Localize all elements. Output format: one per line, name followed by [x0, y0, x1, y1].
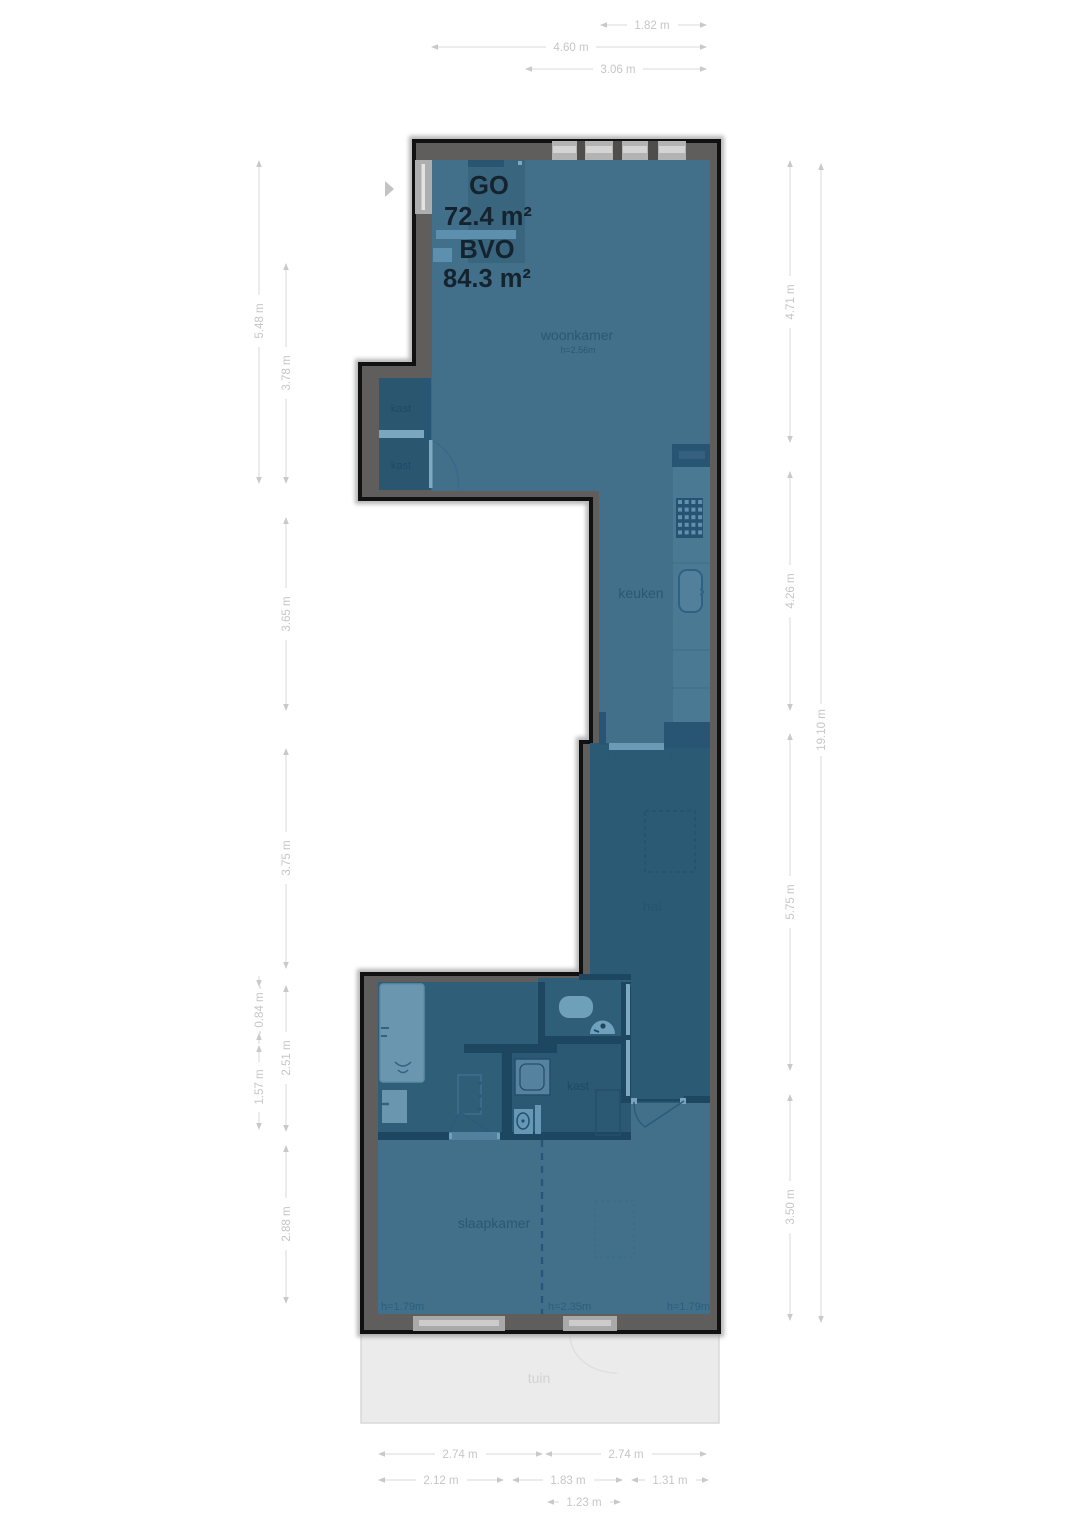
svg-text:1.83 m: 1.83 m	[550, 1475, 585, 1487]
svg-text:19.10 m: 19.10 m	[816, 709, 828, 751]
svg-text:1.31 m: 1.31 m	[652, 1475, 687, 1487]
svg-text:4.71 m: 4.71 m	[785, 284, 797, 319]
svg-text:- 0.84 m -: - 0.84 m -	[254, 985, 266, 1034]
svg-text:3.78 m: 3.78 m	[281, 355, 293, 390]
svg-text:h=2.26m: h=2.26m	[597, 752, 630, 762]
svg-text:h=1.79m: h=1.79m	[381, 1301, 424, 1313]
svg-text:84.3 m²: 84.3 m²	[443, 265, 531, 293]
svg-text:3.75 m: 3.75 m	[281, 840, 293, 875]
svg-text:2.12 m: 2.12 m	[423, 1475, 458, 1487]
svg-text:kast: kast	[391, 403, 411, 415]
svg-text:2.74 m: 2.74 m	[608, 1449, 643, 1461]
svg-text:5.48 m: 5.48 m	[254, 303, 266, 338]
svg-text:3.06 m: 3.06 m	[600, 64, 635, 76]
svg-text:3.65 m: 3.65 m	[281, 596, 293, 631]
svg-text:1.57 m: 1.57 m	[254, 1069, 266, 1104]
svg-text:h=2.35m: h=2.35m	[548, 1301, 591, 1313]
svg-text:hal: hal	[643, 898, 662, 914]
svg-text:GO: GO	[469, 172, 509, 200]
svg-text:72.4 m²: 72.4 m²	[444, 203, 532, 231]
svg-text:2.74 m: 2.74 m	[442, 1449, 477, 1461]
svg-text:1.82 m: 1.82 m	[634, 20, 669, 32]
svg-text:5.75 m: 5.75 m	[785, 884, 797, 919]
svg-text:kast: kast	[391, 460, 411, 472]
svg-text:BVO: BVO	[459, 236, 514, 264]
svg-text:4.60 m: 4.60 m	[553, 42, 588, 54]
svg-text:keuken: keuken	[618, 585, 663, 601]
svg-text:2.51 m: 2.51 m	[281, 1040, 293, 1075]
svg-text:2.88 m: 2.88 m	[281, 1206, 293, 1241]
svg-text:h=1.79m: h=1.79m	[670, 752, 703, 762]
svg-text:4.26 m: 4.26 m	[785, 573, 797, 608]
svg-text:3.50 m: 3.50 m	[785, 1189, 797, 1224]
svg-text:tuin: tuin	[528, 1370, 551, 1386]
svg-text:woonkamer: woonkamer	[540, 327, 614, 343]
svg-text:h=1.79m: h=1.79m	[667, 1301, 710, 1313]
svg-text:kast: kast	[567, 1079, 590, 1093]
svg-text:1.23 m: 1.23 m	[566, 1497, 601, 1509]
svg-text:h=2.56m: h=2.56m	[560, 345, 595, 355]
svg-text:slaapkamer: slaapkamer	[458, 1215, 531, 1231]
